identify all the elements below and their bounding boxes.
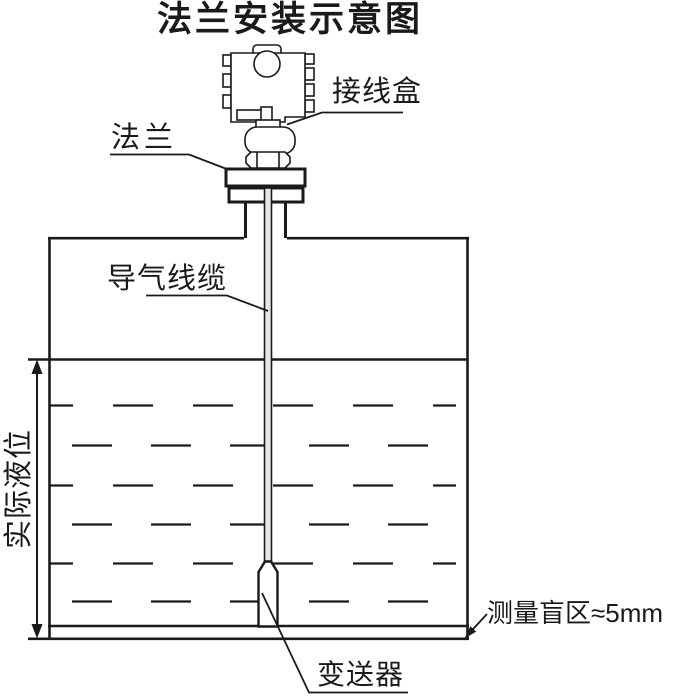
probe-weight: [259, 562, 278, 627]
flange-label: 法兰: [111, 123, 177, 153]
head-dome: [254, 51, 280, 77]
page-title: 法兰安装示意图: [145, 2, 435, 39]
flange-plate: [226, 169, 305, 186]
flange-leader: [110, 155, 228, 170]
transmitter-label: 变送器: [317, 660, 404, 689]
head-right-rib: [305, 54, 314, 64]
flange-installation-diagram: 法兰安装示意图 接线盒 法兰 导气线缆 实际液位 变送器 测量盲区≈5mm: [0, 0, 700, 700]
head-right-rib: [305, 100, 314, 112]
air-cable-leader: [146, 296, 268, 312]
junction-box-label: 接线盒: [332, 77, 422, 107]
air-cable-label: 导气线缆: [107, 264, 227, 294]
blind-zone-label: 测量盲区≈5mm: [487, 600, 663, 627]
dimension-arrowhead-down: [32, 624, 43, 639]
head-terminal-block: [237, 110, 262, 120]
head-left-rib: [223, 55, 231, 66]
dimension-arrowhead-up: [32, 360, 43, 375]
process-housing: [245, 127, 295, 154]
head-right-rib: [305, 84, 314, 96]
actual-level-label: 实际液位: [4, 424, 36, 554]
transmitter-head-drawing: [223, 45, 314, 168]
head-left-rib: [223, 95, 231, 108]
head-left-rib: [223, 74, 231, 87]
air-guide-cable-line: [265, 188, 272, 562]
head-right-rib: [305, 68, 314, 80]
tank-outline: [28, 237, 469, 640]
hex-nut: [246, 152, 290, 168]
